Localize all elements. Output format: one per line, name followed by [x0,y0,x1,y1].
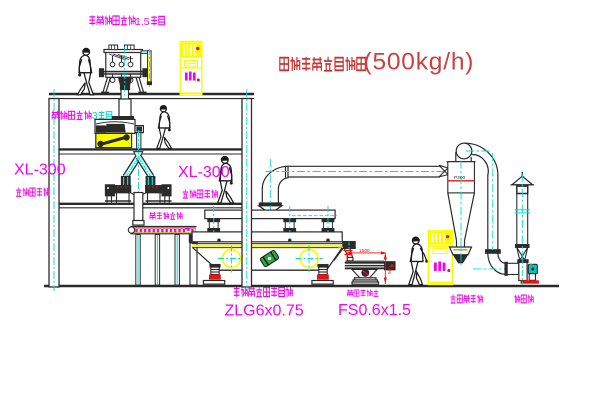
svg-text:1.5: 1.5 [135,16,150,28]
svg-text:FS0.6x1.5: FS0.6x1.5 [338,302,411,319]
svg-text:500: 500 [387,266,393,274]
svg-text:XL-300: XL-300 [178,164,230,181]
svg-text:ZLG6x0.75: ZLG6x0.75 [225,303,304,320]
svg-text:1500: 1500 [359,248,370,254]
svg-text:XL-300: XL-300 [14,162,66,179]
svg-text:P300: P300 [454,175,466,181]
svg-text:(500kg/h): (500kg/h) [364,49,475,76]
